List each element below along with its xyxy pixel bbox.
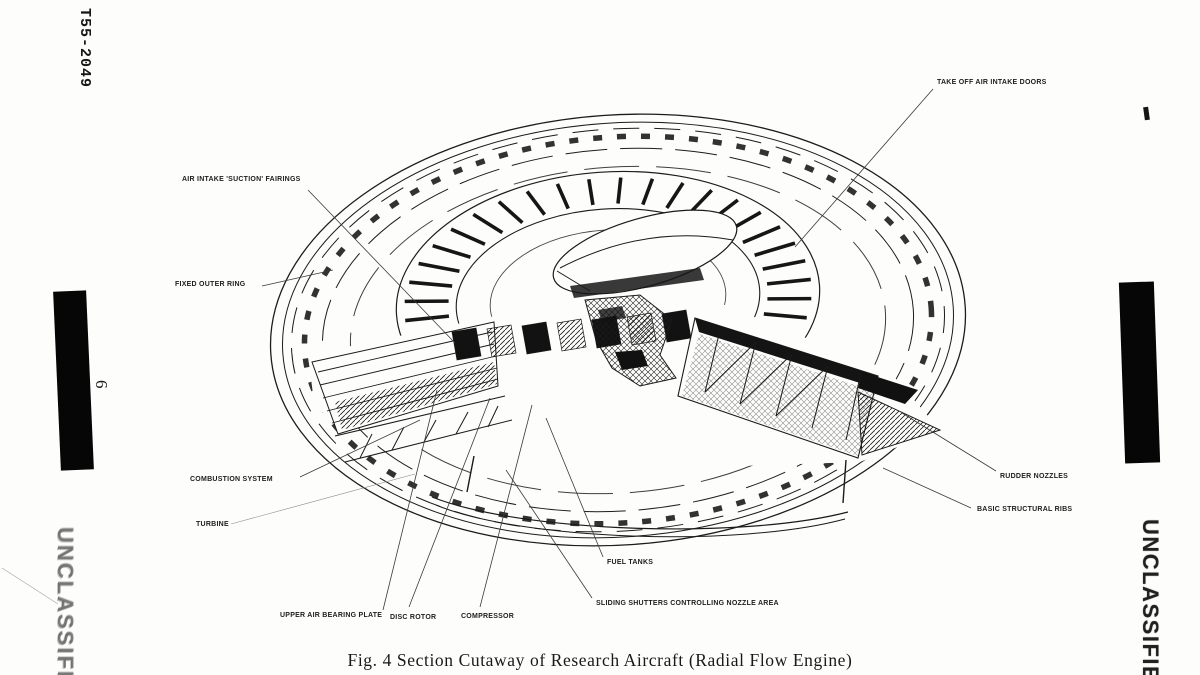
- label-take-off-air-intake-doors: TAKE OFF AIR INTAKE DOORS: [937, 79, 1047, 86]
- document-number: T55-2049: [73, 8, 93, 108]
- figure-caption: Fig. 4 Section Cutaway of Research Aircr…: [0, 650, 1200, 671]
- redaction-bar-right: [1119, 281, 1160, 463]
- unclassified-stamp-right: UNCLASSIFIED: [1127, 519, 1163, 669]
- page-number: 6: [91, 380, 111, 404]
- label-turbine: TURBINE: [196, 521, 229, 528]
- label-disc-rotor: DISC ROTOR: [390, 614, 436, 621]
- label-fuel-tanks: FUEL TANKS: [607, 559, 653, 566]
- label-basic-structural-ribs: BASIC STRUCTURAL RIBS: [977, 506, 1072, 513]
- cutaway-illustration: [0, 0, 1200, 675]
- label-combustion-system: COMBUSTION SYSTEM: [190, 476, 273, 483]
- label-sliding-shutters: SLIDING SHUTTERS CONTROLLING NOZZLE AREA: [596, 600, 779, 607]
- label-air-intake-fairings: AIR INTAKE 'SUCTION' FAIRINGS: [182, 176, 301, 183]
- label-rudder-nozzles: RUDDER NOZZLES: [1000, 473, 1068, 480]
- scanned-document-page: T55-2049 6 UNCLASSIFIED UNCLASSIFIED TAK…: [0, 0, 1200, 675]
- label-compressor: COMPRESSOR: [461, 613, 514, 620]
- label-fixed-outer-ring: FIXED OUTER RING: [175, 281, 246, 288]
- label-upper-air-bearing-plate: UPPER AIR BEARING PLATE: [280, 612, 382, 619]
